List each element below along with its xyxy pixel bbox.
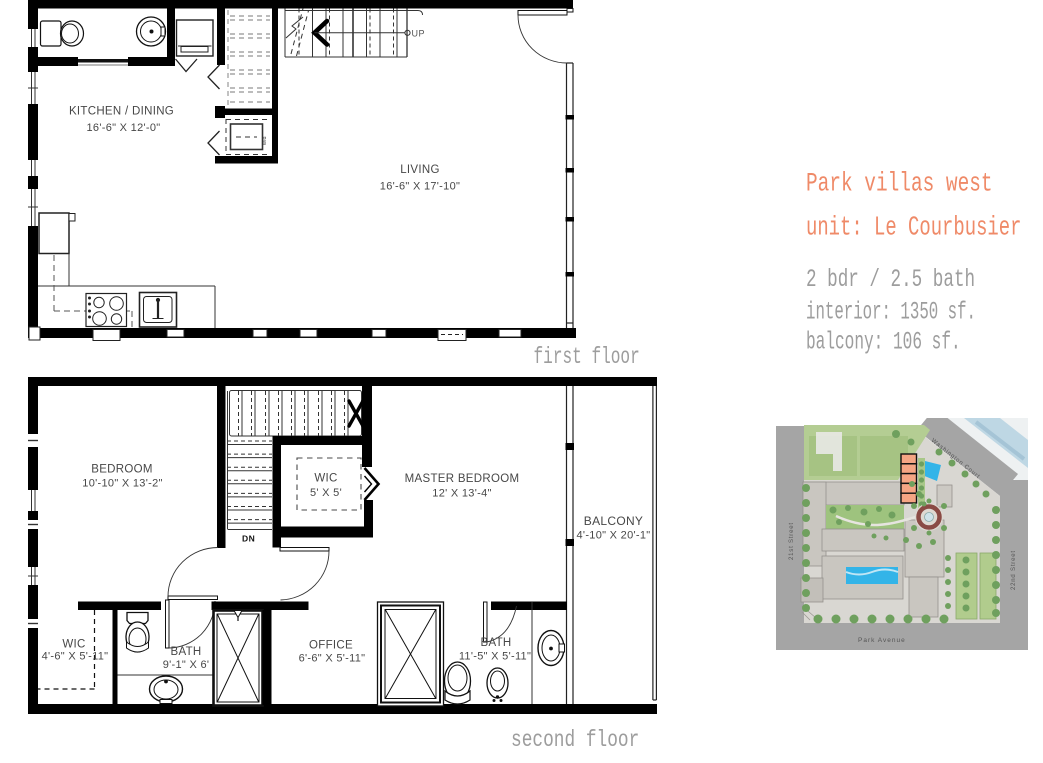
svg-text:interior: 1350 sf.: interior: 1350 sf.	[806, 299, 976, 327]
svg-text:Park villas west: Park villas west	[806, 169, 993, 200]
svg-text:KITCHEN / DINING: KITCHEN / DINING	[69, 106, 174, 118]
svg-text:BEDROOM: BEDROOM	[91, 464, 153, 476]
svg-text:4'-10" X 20'-1": 4'-10" X 20'-1"	[577, 530, 651, 542]
svg-text:BATH: BATH	[170, 646, 201, 658]
svg-text:MASTER BEDROOM: MASTER BEDROOM	[405, 473, 520, 485]
svg-text:unit: Le Courbusier: unit: Le Courbusier	[806, 212, 1021, 242]
svg-text:balcony: 106 sf.: balcony: 106 sf.	[806, 328, 961, 357]
svg-text:12' X 13'-4": 12' X 13'-4"	[432, 488, 491, 500]
svg-text:UP: UP	[412, 29, 426, 39]
svg-text:BALCONY: BALCONY	[584, 514, 643, 528]
svg-text:11'-5" X 5'-11": 11'-5" X 5'-11"	[459, 651, 531, 663]
svg-text:second floor: second floor	[511, 728, 639, 754]
svg-text:WIC: WIC	[314, 473, 337, 485]
svg-text:9'-1" X 6': 9'-1" X 6'	[163, 659, 210, 671]
svg-text:first floor: first floor	[534, 343, 640, 370]
svg-text:DN: DN	[242, 534, 255, 544]
svg-text:21st Street: 21st Street	[789, 522, 795, 560]
svg-text:10'-10" X 13'-2": 10'-10" X 13'-2"	[82, 478, 162, 490]
svg-text:WIC: WIC	[62, 639, 85, 651]
svg-text:16'-6" X 17'-10": 16'-6" X 17'-10"	[380, 181, 460, 193]
svg-text:22nd Street: 22nd Street	[1011, 550, 1017, 590]
svg-text:6'-6" X 5'-11": 6'-6" X 5'-11"	[299, 653, 366, 665]
svg-text:w/d: w/d	[262, 136, 268, 146]
svg-text:16'-6" X 12'-0": 16'-6" X 12'-0"	[87, 122, 161, 134]
svg-text:2 bdr / 2.5 bath: 2 bdr / 2.5 bath	[806, 266, 975, 294]
svg-text:BATH: BATH	[480, 637, 511, 649]
svg-text:5' X 5': 5' X 5'	[310, 487, 342, 499]
svg-text:LIVING: LIVING	[400, 164, 440, 176]
svg-text:4'-6" X 5'-11": 4'-6" X 5'-11"	[42, 651, 109, 663]
svg-text:Park Avenue: Park Avenue	[858, 637, 906, 644]
svg-text:OFFICE: OFFICE	[309, 640, 353, 652]
